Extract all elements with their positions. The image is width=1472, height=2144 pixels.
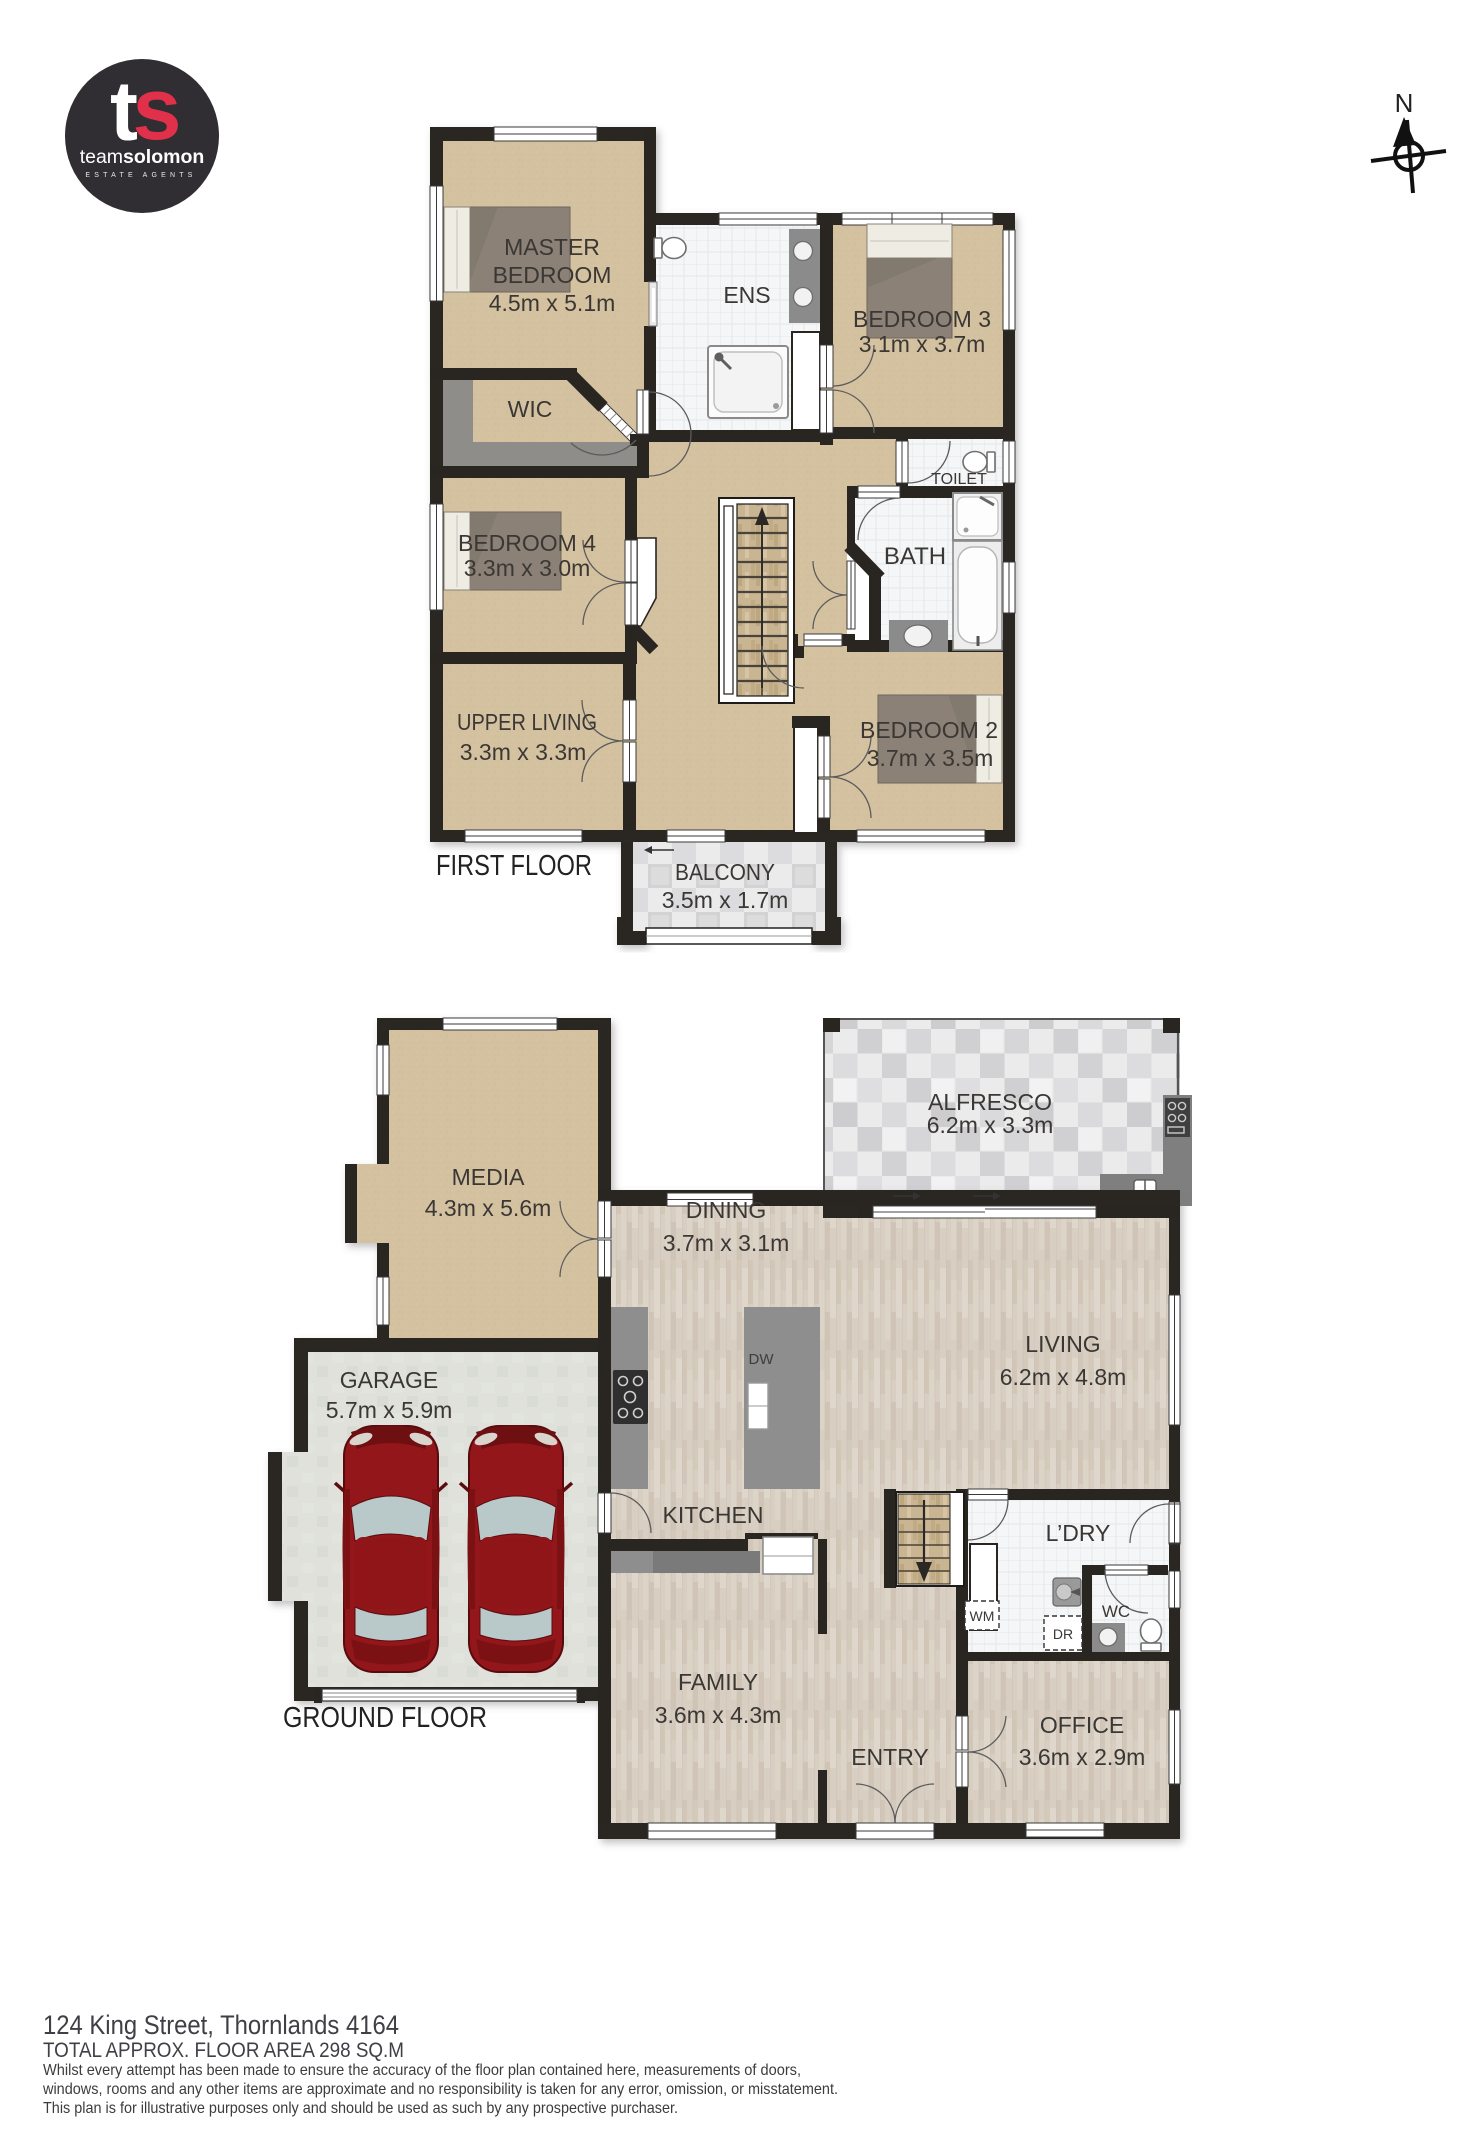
svg-text:DINING: DINING	[686, 1197, 767, 1223]
svg-text:GROUND FLOOR: GROUND FLOOR	[283, 1702, 487, 1734]
svg-text:OFFICE: OFFICE	[1040, 1712, 1124, 1738]
svg-text:N: N	[1395, 88, 1414, 118]
svg-text:ENS: ENS	[723, 282, 770, 308]
svg-text:KITCHEN: KITCHEN	[663, 1502, 764, 1528]
svg-text:BEDROOM 2: BEDROOM 2	[860, 717, 998, 743]
svg-text:BATH: BATH	[884, 543, 946, 570]
svg-text:TOILET: TOILET	[931, 471, 987, 488]
svg-text:6.2m x 3.3m: 6.2m x 3.3m	[927, 1112, 1054, 1138]
svg-text:MASTER: MASTER	[504, 234, 600, 260]
svg-text:3.3m x 3.0m: 3.3m x 3.0m	[464, 555, 591, 581]
svg-text:LIVING: LIVING	[1025, 1331, 1100, 1357]
svg-text:FIRST FLOOR: FIRST FLOOR	[436, 850, 592, 882]
svg-text:124 King Street, Thornlands 41: 124 King Street, Thornlands 4164	[43, 2010, 399, 2040]
svg-text:6.2m x 4.8m: 6.2m x 4.8m	[1000, 1364, 1127, 1390]
svg-text:BEDROOM 4: BEDROOM 4	[458, 530, 596, 556]
svg-text:BALCONY: BALCONY	[675, 859, 775, 885]
svg-text:3.6m x 4.3m: 3.6m x 4.3m	[655, 1702, 782, 1728]
svg-text:3.6m x 2.9m: 3.6m x 2.9m	[1019, 1744, 1146, 1770]
svg-text:5.7m x 5.9m: 5.7m x 5.9m	[326, 1397, 453, 1423]
svg-text:4.5m x 5.1m: 4.5m x 5.1m	[489, 290, 616, 316]
svg-text:BEDROOM 3: BEDROOM 3	[853, 306, 991, 332]
svg-text:windows, rooms and any other i: windows, rooms and any other items are a…	[42, 2081, 838, 2098]
svg-text:WM: WM	[970, 1608, 995, 1624]
svg-text:MEDIA: MEDIA	[452, 1164, 526, 1190]
svg-text:s: s	[133, 59, 182, 158]
svg-text:3.7m x 3.1m: 3.7m x 3.1m	[663, 1230, 790, 1256]
svg-text:DW: DW	[749, 1351, 775, 1368]
svg-text:TOTAL APPROX. FLOOR AREA 298 S: TOTAL APPROX. FLOOR AREA 298 SQ.M	[43, 2039, 404, 2062]
svg-text:Whilst every attempt has been: Whilst every attempt has been made to en…	[43, 2062, 801, 2079]
svg-text:4.3m x 5.6m: 4.3m x 5.6m	[425, 1195, 552, 1221]
svg-text:3.3m x 3.3m: 3.3m x 3.3m	[460, 739, 587, 765]
svg-text:WC: WC	[1102, 1602, 1130, 1621]
svg-text:3.7m x 3.5m: 3.7m x 3.5m	[867, 745, 994, 771]
svg-text:ESTATE AGENTS: ESTATE AGENTS	[85, 172, 196, 179]
svg-text:This plan is for illustrative: This plan is for illustrative purposes o…	[43, 2100, 678, 2117]
svg-text:3.1m x 3.7m: 3.1m x 3.7m	[859, 331, 986, 357]
svg-text:FAMILY: FAMILY	[678, 1669, 758, 1695]
svg-text:GARAGE: GARAGE	[340, 1367, 438, 1393]
svg-text:ENTRY: ENTRY	[851, 1744, 929, 1770]
svg-text:BEDROOM: BEDROOM	[493, 262, 612, 288]
svg-text:L’DRY: L’DRY	[1046, 1520, 1111, 1546]
svg-text:teamsolomon: teamsolomon	[80, 146, 205, 168]
svg-text:UPPER LIVING: UPPER LIVING	[457, 709, 597, 735]
svg-text:3.5m x 1.7m: 3.5m x 1.7m	[662, 887, 789, 913]
svg-text:DR: DR	[1053, 1626, 1073, 1642]
svg-text:WIC: WIC	[508, 396, 553, 422]
